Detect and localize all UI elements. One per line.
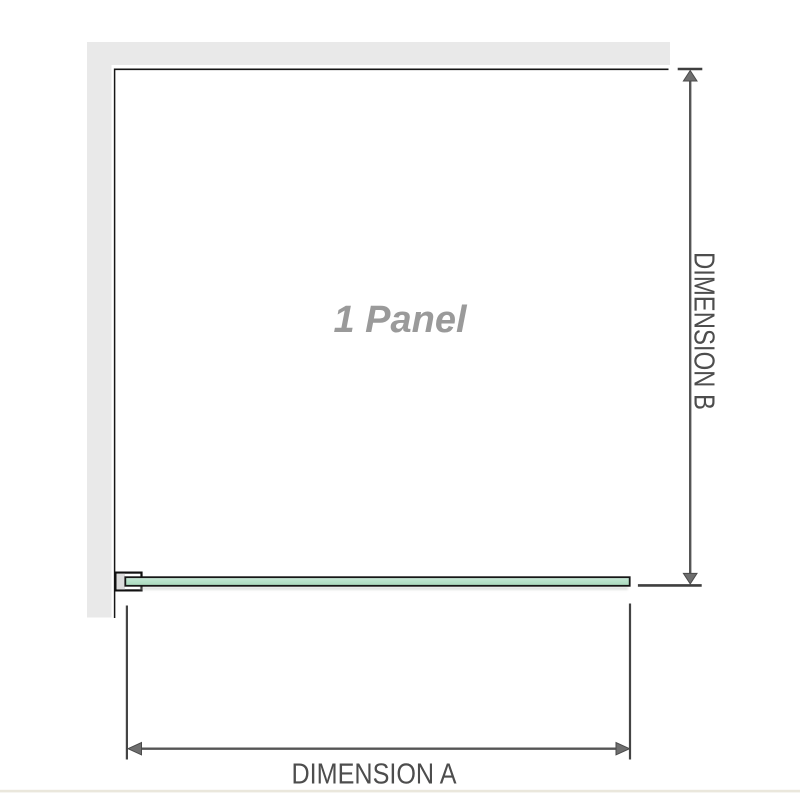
svg-text:DIMENSION A: DIMENSION A xyxy=(292,759,458,791)
svg-text:DIMENSION B: DIMENSION B xyxy=(688,252,720,410)
svg-text:1 Panel: 1 Panel xyxy=(333,299,468,341)
